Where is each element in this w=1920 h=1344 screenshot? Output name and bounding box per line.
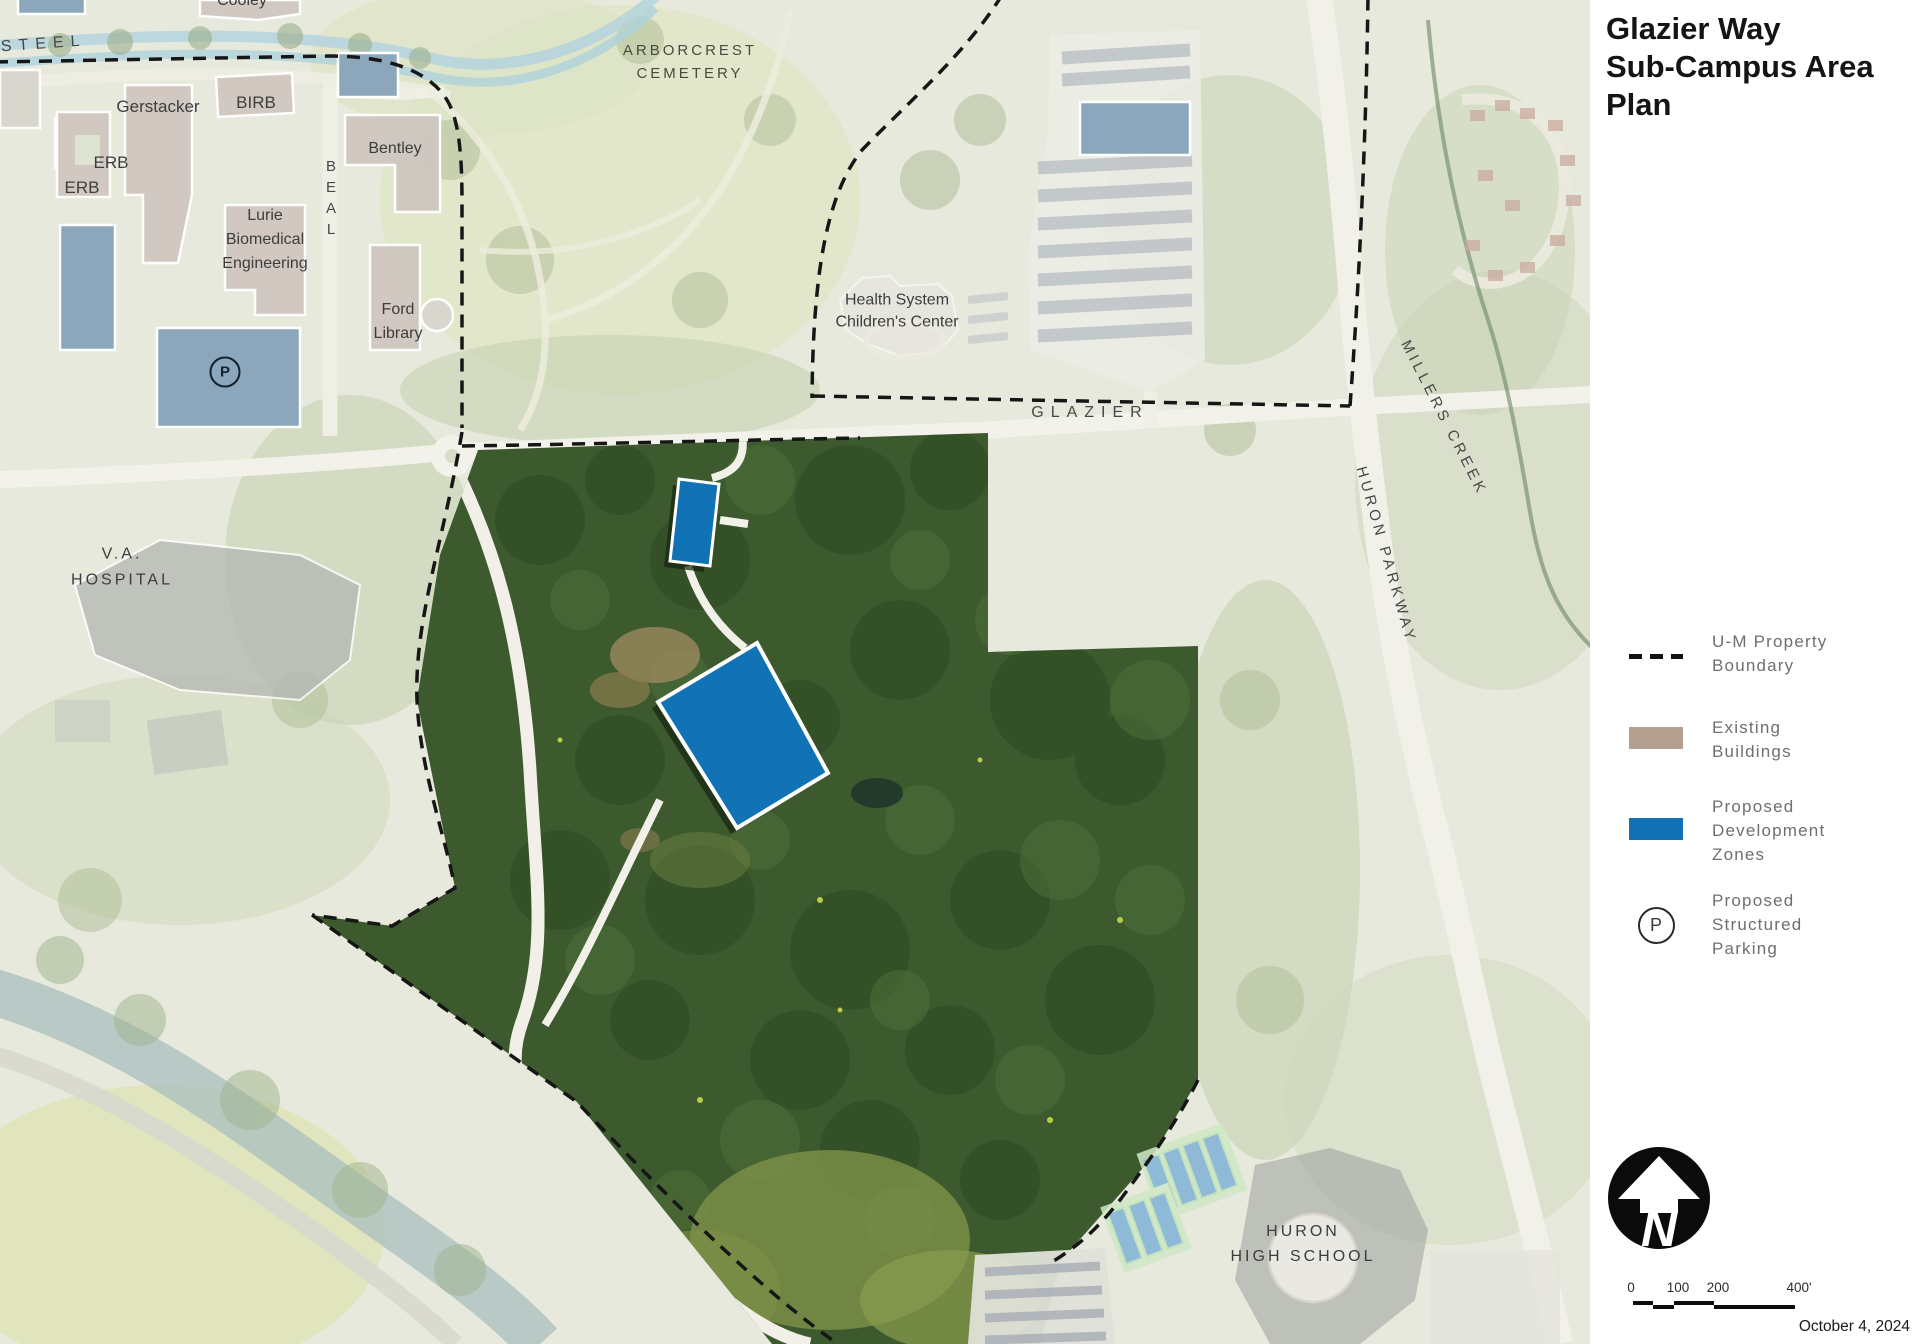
existing-buildings-swatch xyxy=(1629,727,1683,749)
map-label-huron-high-school: HURON HIGH SCHOOL xyxy=(1230,1220,1375,1270)
health-system-parking-lot xyxy=(1028,30,1205,428)
map-parking-badge-icon: P xyxy=(210,357,241,388)
map-label-erb-lower: ERB xyxy=(65,176,100,200)
legend-label: Proposed Structured Parking xyxy=(1712,889,1912,961)
plan-date: October 4, 2024 xyxy=(1799,1318,1910,1336)
map-label-va-hospital: V.A. HOSPITAL xyxy=(71,541,173,592)
svg-text:N: N xyxy=(1641,1201,1678,1249)
map-label-beal: BEAL xyxy=(321,158,342,242)
map-label-erb-upper: ERB xyxy=(94,151,129,175)
map-label-glazier: GLAZIER xyxy=(1031,402,1148,424)
glazier-way-sub-campus-plan: Cooley ISTEEL Gerstacker BIRB ERB ERB Be… xyxy=(0,0,1920,1344)
map-label-ford-library: Ford Library xyxy=(374,298,423,346)
scale-tick: 0 xyxy=(1627,1280,1635,1295)
map-label-arborcrest-cemetery: ARBORCREST CEMETERY xyxy=(623,39,757,86)
legend-label: Existing Buildings xyxy=(1712,716,1912,764)
scale-tick: 100 xyxy=(1667,1280,1690,1295)
map-artwork xyxy=(0,0,1590,1344)
school-parking-lot xyxy=(968,1248,1115,1344)
scale-tick: 200 xyxy=(1707,1280,1730,1295)
map-label-gerstacker: Gerstacker xyxy=(116,95,199,119)
page-title: Glazier Way Sub-Campus Area Plan xyxy=(1606,10,1906,124)
map-label-bentley: Bentley xyxy=(368,138,421,160)
scale-labels: 0 100 200 400' xyxy=(1590,1280,1920,1296)
proposed-development-swatch xyxy=(1629,818,1683,840)
scale-tick: 400' xyxy=(1786,1280,1811,1295)
map-label-health-system-childrens-center: Health System Children's Center xyxy=(835,290,958,335)
north-arrow-icon: N xyxy=(1608,1147,1710,1249)
legend-label: Proposed Development Zones xyxy=(1712,795,1912,867)
legend-panel: Glazier Way Sub-Campus Area Plan U-M Pro… xyxy=(1590,0,1920,1344)
scale-bar xyxy=(1633,1301,1795,1310)
map-label-lurie: Lurie Biomedical Engineering xyxy=(222,204,307,276)
legend-label: U-M Property Boundary xyxy=(1712,630,1912,678)
parking-circle-icon: P xyxy=(1638,907,1675,944)
map-canvas: Cooley ISTEEL Gerstacker BIRB ERB ERB Be… xyxy=(0,0,1590,1344)
map-label-birb: BIRB xyxy=(236,91,276,115)
dashed-line-swatch xyxy=(1629,654,1683,659)
sub-campus-site xyxy=(312,430,1198,1344)
map-label-cooley: Cooley xyxy=(217,0,267,12)
